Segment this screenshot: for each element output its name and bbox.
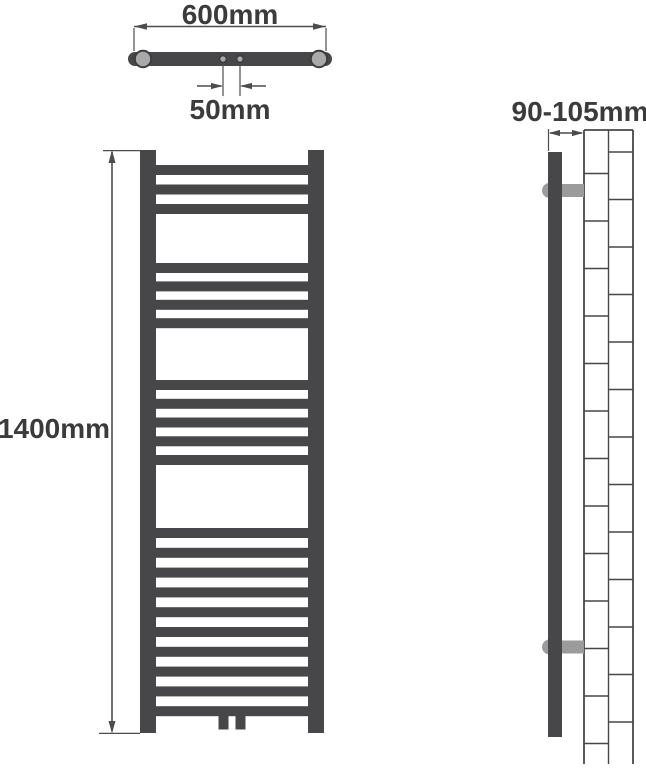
fixing-hole-right	[237, 56, 244, 63]
diagram-canvas: 600mm 50mm 1400mm	[0, 0, 646, 768]
rung	[149, 418, 315, 428]
rung	[149, 627, 315, 637]
rungs	[149, 165, 315, 716]
width-dimension-label: 600mm	[182, 0, 279, 30]
height-arrowhead-top-icon	[109, 150, 116, 163]
rail-end-cap-left	[135, 51, 151, 67]
rung	[149, 548, 315, 558]
rung	[149, 380, 315, 390]
top-view: 600mm 50mm	[128, 0, 332, 125]
rung	[149, 165, 315, 175]
towel-rail-dimension-diagram: 600mm 50mm 1400mm	[0, 0, 646, 768]
rung	[149, 607, 315, 617]
height-arrowhead-bottom-icon	[109, 721, 116, 734]
wall	[584, 130, 633, 764]
radiator-side-profile	[548, 152, 562, 737]
rung	[149, 647, 315, 657]
rail-end-cap-right	[311, 51, 327, 67]
hole-spacing-arrowhead-right-icon	[240, 83, 252, 89]
rung	[149, 528, 315, 538]
rung	[149, 706, 315, 716]
depth-arrowhead-left-icon	[549, 130, 560, 136]
rung	[149, 568, 315, 578]
rung	[149, 204, 315, 214]
depth-arrowhead-right-icon	[572, 130, 584, 136]
rung	[149, 399, 315, 409]
height-dimension-label: 1400mm	[0, 413, 110, 444]
rail-top-view-bar	[128, 52, 332, 66]
rung	[149, 587, 315, 597]
valve-connection-right	[236, 714, 246, 730]
rung	[149, 263, 315, 273]
valve-connection-left	[219, 714, 229, 730]
depth-dimension-label: 90-105mm	[512, 96, 646, 127]
width-arrowhead-right-icon	[313, 23, 326, 30]
width-arrowhead-left-icon	[134, 23, 147, 30]
hole-spacing-label: 50mm	[190, 94, 271, 125]
rung	[149, 318, 315, 328]
rung	[149, 300, 315, 310]
hole-spacing-arrowhead-left-icon	[211, 83, 223, 89]
front-view: 1400mm	[0, 150, 324, 734]
rung	[149, 185, 315, 195]
rung	[149, 686, 315, 696]
rung	[149, 436, 315, 446]
fixing-hole-left	[220, 56, 227, 63]
rung	[149, 667, 315, 677]
side-view: 90-105mm	[512, 96, 646, 764]
rung	[149, 281, 315, 291]
rung	[149, 455, 315, 465]
